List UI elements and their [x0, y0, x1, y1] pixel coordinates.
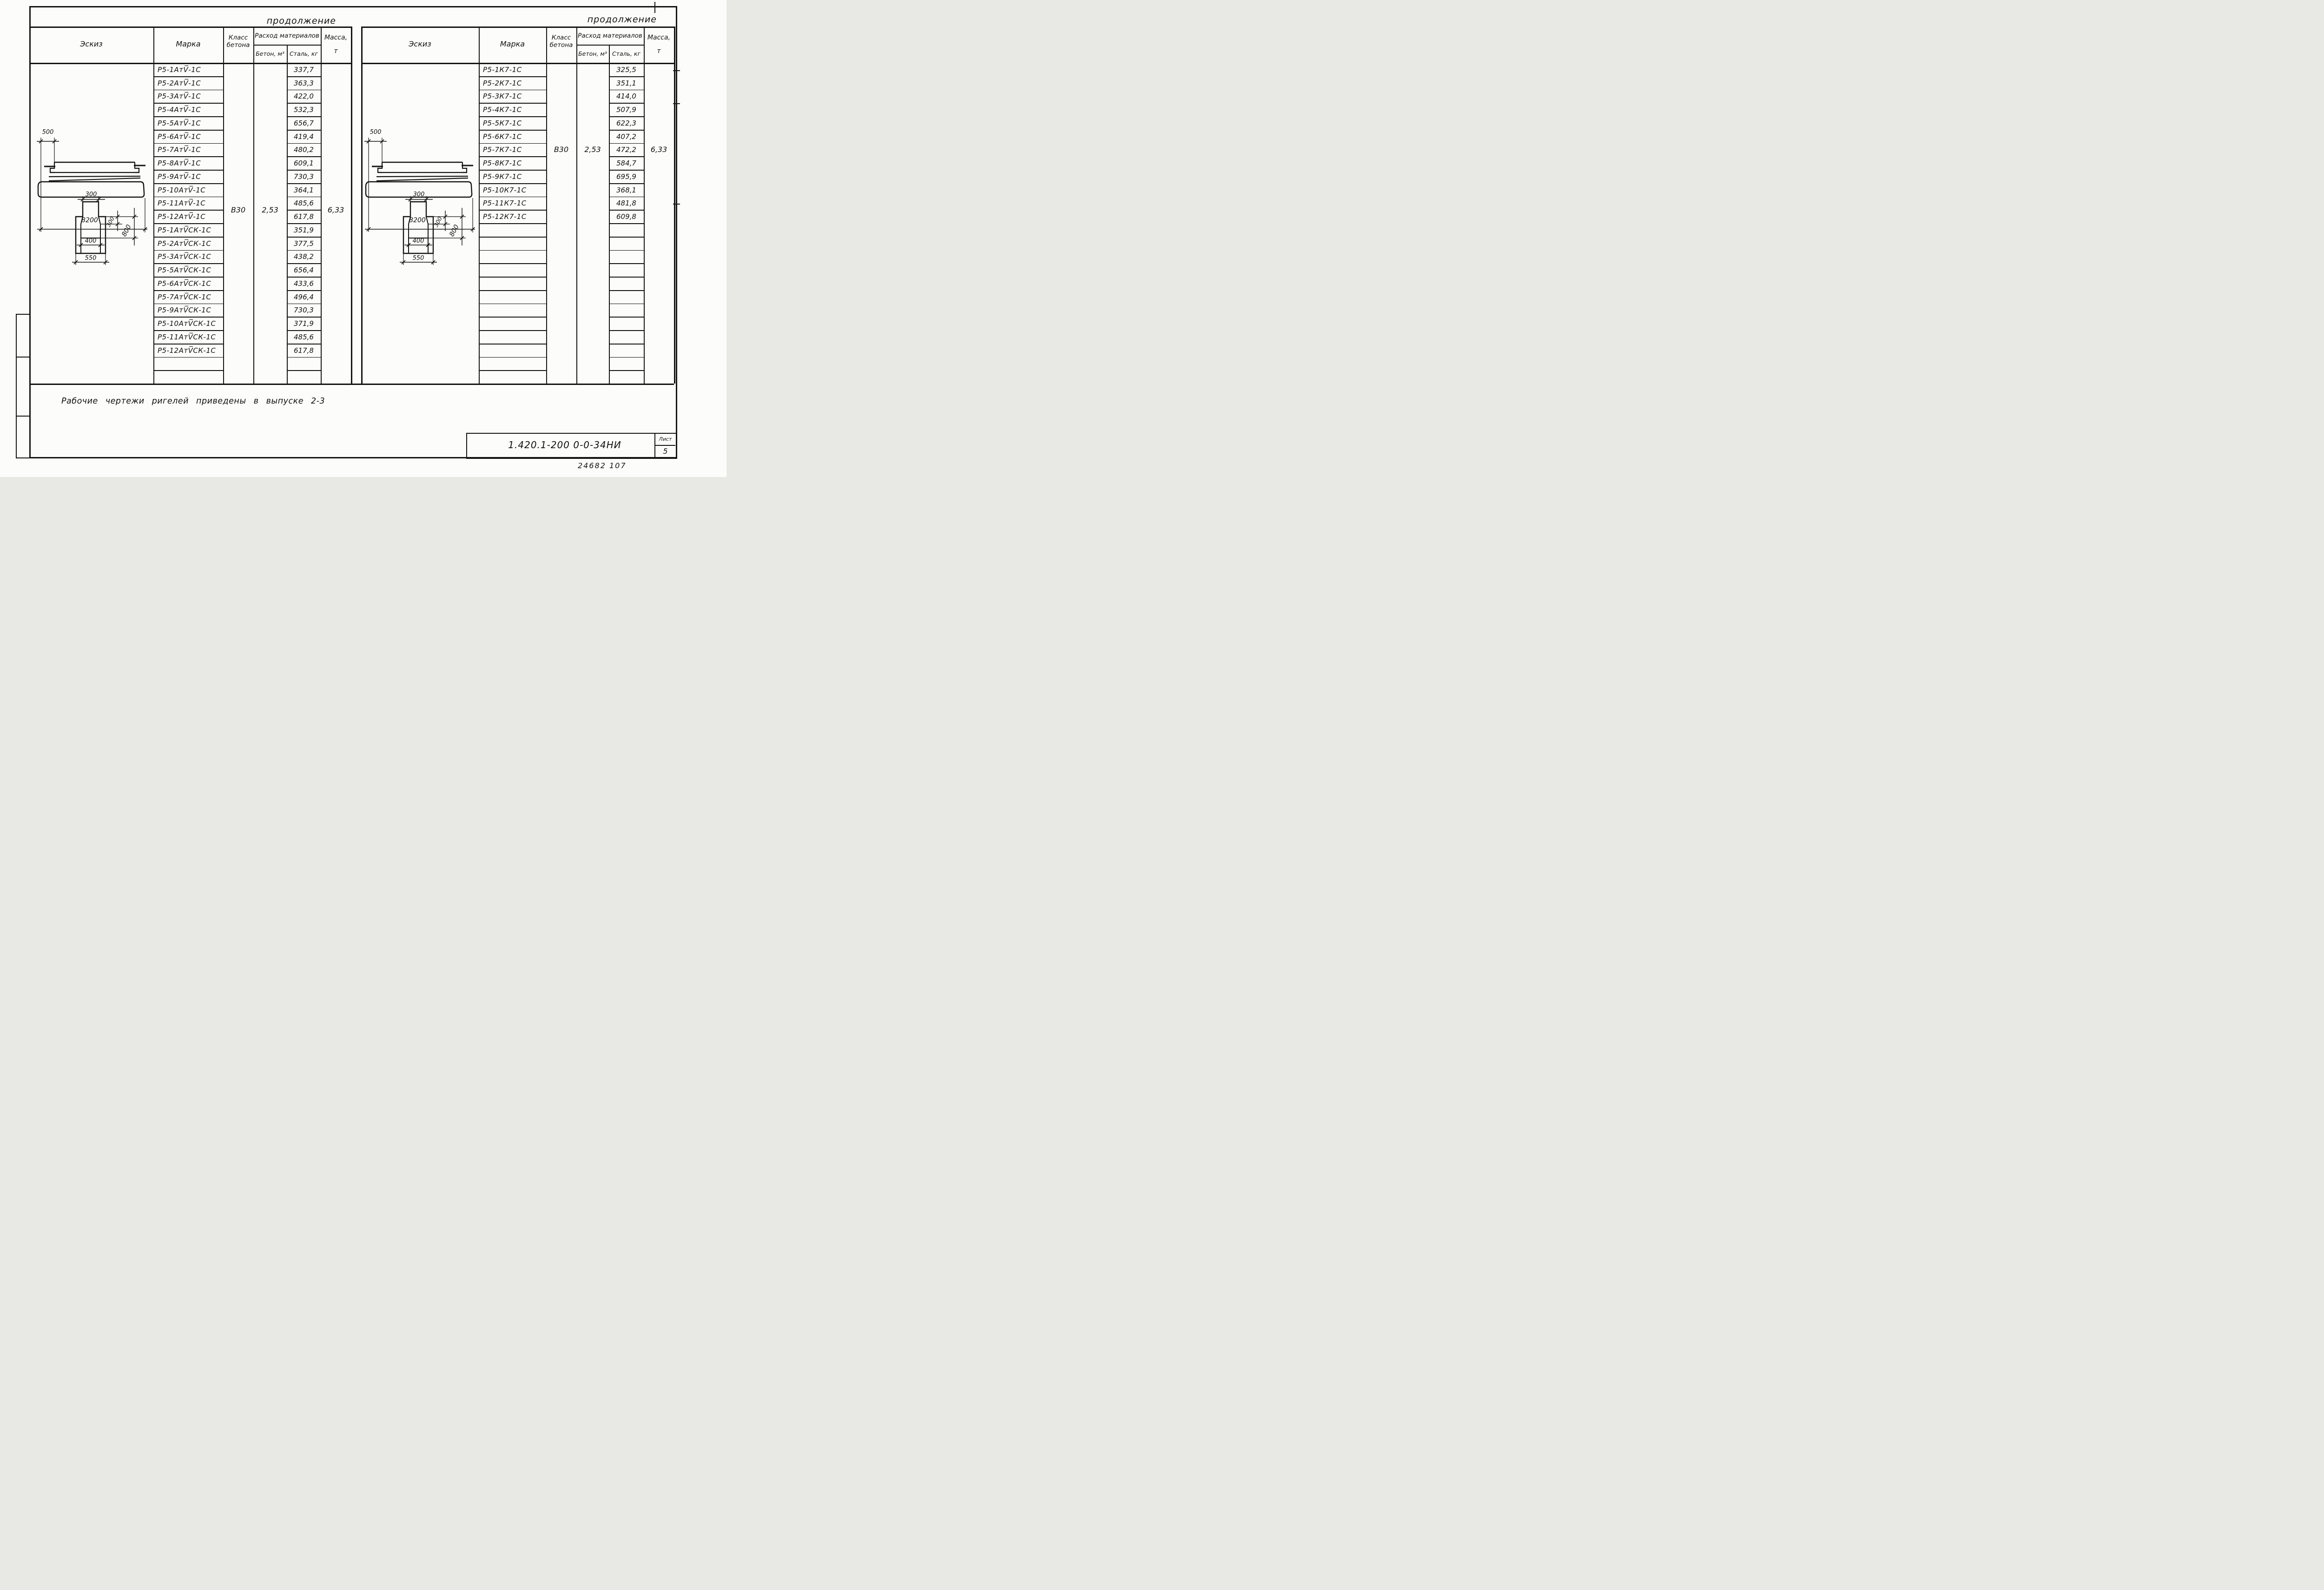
header-mark: Марка — [480, 38, 545, 50]
row-separator — [609, 170, 644, 171]
mark-cell: Р5-4К7-1С — [483, 104, 544, 115]
sheet-label: Лист — [655, 434, 675, 444]
row-separator — [609, 76, 644, 77]
steel-cell: 407,2 — [610, 131, 643, 142]
row-separator — [609, 290, 644, 291]
row-separator — [153, 76, 223, 77]
header-steel-kg: Сталь, кг — [612, 45, 641, 62]
row-separator — [153, 183, 223, 184]
steel-cell: 622,3 — [610, 118, 643, 129]
mark-cell: Р5-12АтV̅-1С — [158, 211, 221, 222]
row-separator — [479, 277, 546, 278]
column-divider — [546, 26, 547, 384]
row-separator — [153, 304, 223, 305]
mark-cell: Р5-2К7-1С — [483, 78, 544, 89]
mark-cell: Р5-11К7-1С — [483, 198, 544, 209]
row-separator — [609, 116, 644, 117]
row-separator — [287, 170, 321, 171]
steel-cell: 656,7 — [288, 118, 320, 129]
row-separator — [287, 223, 321, 224]
header-concrete-m3: Бетон, м³ — [578, 45, 607, 62]
tables-bottom-border — [29, 384, 674, 385]
mark-cell: Р5-1К7-1С — [483, 64, 544, 75]
concrete-class-value: В30 — [547, 144, 575, 155]
steel-cell: 730,3 — [288, 305, 320, 316]
margin-box-1 — [16, 314, 30, 358]
mark-cell: Р5-7АтV̅-1С — [158, 145, 221, 156]
row-separator — [287, 344, 321, 344]
steel-cell: 438,2 — [288, 252, 320, 263]
mark-cell: Р5-5К7-1С — [483, 118, 544, 129]
mark-cell: Р5-6АтV̅СК-1С — [158, 278, 221, 289]
steel-cell: 371,9 — [288, 318, 320, 329]
row-separator — [609, 277, 644, 278]
row-separator — [287, 330, 321, 331]
row-separator — [153, 330, 223, 331]
row-separator — [609, 210, 644, 211]
steel-cell: 485,6 — [288, 331, 320, 343]
continuation-label-right: продолжение — [578, 14, 657, 25]
fold-mark — [654, 2, 655, 13]
row-separator — [153, 357, 223, 358]
mark-cell: Р5-1АтV̅СК-1С — [158, 225, 221, 236]
row-separator — [479, 156, 546, 157]
row-separator — [479, 357, 546, 358]
mark-cell: Р5-5АтV̅-1С — [158, 118, 221, 129]
header-steel-kg: Сталь, кг — [290, 45, 318, 62]
row-separator — [479, 103, 546, 104]
steel-cell: 496,4 — [288, 291, 320, 303]
dim-800: 800 — [448, 223, 461, 238]
row-separator — [287, 317, 321, 318]
row-separator — [153, 170, 223, 171]
mark-cell: Р5-2АтV̅СК-1С — [158, 238, 221, 249]
concrete-volume-value: 2,53 — [254, 204, 286, 215]
row-separator — [153, 237, 223, 238]
mark-cell: Р5-12АтV̅СК-1С — [158, 345, 221, 356]
mark-cell: Р5-6АтV̅-1С — [158, 131, 221, 142]
row-separator — [609, 344, 644, 344]
row-separator — [609, 237, 644, 238]
steel-cell: 609,8 — [610, 211, 643, 222]
row-separator — [609, 304, 644, 305]
row-separator — [479, 223, 546, 224]
stamp-number: 24682 107 — [578, 461, 671, 470]
row-separator — [609, 250, 644, 251]
steel-cell: 617,8 — [288, 345, 320, 356]
row-separator — [479, 170, 546, 171]
mark-cell: Р5-8АтV̅-1С — [158, 158, 221, 169]
steel-cell: 480,2 — [288, 145, 320, 156]
table-right-border — [674, 26, 675, 384]
row-separator — [609, 183, 644, 184]
steel-cell: 414,0 — [610, 91, 643, 102]
steel-cell: 422,0 — [288, 91, 320, 102]
row-separator — [609, 357, 644, 358]
table-right-border — [351, 26, 352, 384]
steel-cell: 351,9 — [288, 225, 320, 236]
row-separator — [479, 330, 546, 331]
mark-cell: Р5-10АтV̅СК-1С — [158, 318, 221, 329]
row-separator — [287, 156, 321, 157]
dim-8200: 8200 — [409, 217, 426, 224]
dim-500: 500 — [370, 129, 382, 136]
document-number: 1.420.1-200 0-0-34НИ — [476, 434, 653, 456]
row-separator — [153, 277, 223, 278]
row-separator — [479, 76, 546, 77]
column-divider — [576, 26, 577, 384]
row-separator — [153, 156, 223, 157]
steel-cell: 433,6 — [288, 278, 320, 289]
row-separator — [609, 197, 644, 198]
steel-cell: 337,7 — [288, 64, 320, 75]
steel-cell: 507,9 — [610, 104, 643, 115]
row-separator — [479, 317, 546, 318]
margin-box-3 — [16, 416, 30, 458]
dim-550: 550 — [85, 255, 97, 262]
mark-cell: Р5-11АтV̅СК-1С — [158, 331, 221, 343]
row-separator — [287, 304, 321, 305]
mark-cell: Р5-7К7-1С — [483, 145, 544, 156]
steel-cell: 485,6 — [288, 198, 320, 209]
row-separator — [479, 183, 546, 184]
row-separator — [287, 250, 321, 251]
row-separator — [479, 344, 546, 344]
row-separator — [479, 197, 546, 198]
row-separator — [479, 237, 546, 238]
header-materials: Расход материалов — [255, 27, 320, 45]
sheet-number: 5 — [655, 446, 675, 456]
note-text: Рабочие чертежи ригелей приведены в выпу… — [61, 397, 368, 406]
row-separator — [153, 250, 223, 251]
row-separator — [479, 290, 546, 291]
row-separator — [609, 130, 644, 131]
header-mark: Марка — [156, 38, 221, 50]
mark-cell: Р5-9К7-1С — [483, 171, 544, 182]
steel-cell: 377,5 — [288, 238, 320, 249]
row-separator — [287, 290, 321, 291]
row-separator — [153, 290, 223, 291]
mark-cell: Р5-4АтV̅-1С — [158, 104, 221, 115]
mark-cell: Р5-5АтV̅СК-1С — [158, 265, 221, 276]
mark-cell: Р5-3АтV̅-1С — [158, 91, 221, 102]
steel-cell: 351,1 — [610, 78, 643, 89]
row-separator — [479, 130, 546, 131]
row-separator — [479, 304, 546, 305]
row-separator — [287, 143, 321, 144]
row-separator — [153, 130, 223, 131]
girder-sketch: 500 8200 300 300 800 400 550 — [35, 116, 149, 272]
dim-400: 400 — [85, 238, 97, 245]
row-separator — [287, 103, 321, 104]
dim-8200: 8200 — [81, 217, 98, 224]
mark-cell: Р5-7АтV̅СК-1С — [158, 291, 221, 303]
sketch-right-holder: 500 8200 300 300 800 400 550 — [363, 116, 476, 274]
header-mass-t: Масса, т — [647, 30, 671, 60]
steel-cell: 368,1 — [610, 185, 643, 196]
row-separator — [287, 277, 321, 278]
row-separator — [479, 90, 546, 91]
steel-cell: 695,9 — [610, 171, 643, 182]
mark-cell: Р5-3К7-1С — [483, 91, 544, 102]
mark-cell: Р5-12К7-1С — [483, 211, 544, 222]
mark-cell: Р5-8К7-1С — [483, 158, 544, 169]
row-separator — [287, 183, 321, 184]
dim-550: 550 — [413, 255, 424, 262]
header-concrete-class: Класс бетона — [224, 31, 253, 52]
mark-cell: Р5-10АтV̅-1С — [158, 185, 221, 196]
mark-cell: Р5-9АтV̅СК-1С — [158, 305, 221, 316]
row-separator — [609, 330, 644, 331]
dim-300-ledge: 300 — [105, 215, 116, 228]
mass-value: 6,33 — [645, 144, 673, 155]
row-separator — [479, 263, 546, 264]
mark-cell: Р5-3АтV̅СК-1С — [158, 252, 221, 263]
row-separator — [153, 116, 223, 117]
row-separator — [287, 210, 321, 211]
row-separator — [479, 116, 546, 117]
row-separator — [287, 197, 321, 198]
row-separator — [479, 210, 546, 211]
header-concrete-class: Класс бетона — [547, 31, 576, 52]
row-separator — [153, 223, 223, 224]
row-separator — [287, 116, 321, 117]
row-separator — [153, 143, 223, 144]
row-separator — [609, 370, 644, 371]
row-separator — [287, 90, 321, 91]
row-separator — [479, 143, 546, 144]
row-separator — [609, 223, 644, 224]
row-separator — [609, 103, 644, 104]
dim-400: 400 — [413, 238, 424, 245]
margin-box-2 — [16, 357, 30, 417]
mark-cell: Р5-10К7-1С — [483, 185, 544, 196]
header-sketch: Эскиз — [59, 38, 124, 50]
dim-300-top: 300 — [86, 191, 97, 198]
steel-cell: 730,3 — [288, 171, 320, 182]
steel-cell: 656,4 — [288, 265, 320, 276]
row-separator — [609, 90, 644, 91]
row-separator — [153, 263, 223, 264]
steel-cell: 609,1 — [288, 158, 320, 169]
steel-cell: 481,8 — [610, 198, 643, 209]
row-separator — [609, 156, 644, 157]
row-separator — [609, 143, 644, 144]
row-separator — [153, 344, 223, 344]
mark-cell: Р5-9АтV̅-1С — [158, 171, 221, 182]
row-separator — [287, 237, 321, 238]
steel-cell: 472,2 — [610, 145, 643, 156]
table-left-border — [361, 26, 363, 384]
mark-cell: Р5-11АтV̅-1С — [158, 198, 221, 209]
mark-cell: Р5-6К7-1С — [483, 131, 544, 142]
mark-cell: Р5-1АтV̅-1С — [158, 64, 221, 75]
row-separator — [153, 103, 223, 104]
row-separator — [479, 250, 546, 251]
sketch-left-holder: 500 8200 300 300 800 400 550 — [35, 116, 149, 274]
row-separator — [287, 130, 321, 131]
mass-value: 6,33 — [322, 204, 350, 215]
steel-cell: 532,3 — [288, 104, 320, 115]
column-divider — [644, 26, 645, 384]
row-separator — [609, 317, 644, 318]
row-separator — [153, 370, 223, 371]
row-separator — [153, 317, 223, 318]
steel-cell: 325,5 — [610, 64, 643, 75]
row-separator — [609, 263, 644, 264]
steel-cell: 584,7 — [610, 158, 643, 169]
row-separator — [287, 76, 321, 77]
dim-800: 800 — [120, 223, 133, 238]
dim-500: 500 — [42, 129, 54, 136]
row-separator — [153, 90, 223, 91]
header-sketch: Эскиз — [388, 38, 453, 50]
concrete-volume-value: 2,53 — [577, 144, 608, 155]
dim-300-ledge: 300 — [433, 215, 443, 228]
dim-300-top: 300 — [413, 191, 425, 198]
drawing-sheet: продолжение продолжение 500 8200 300 300… — [0, 0, 726, 477]
row-separator — [287, 263, 321, 264]
steel-cell: 364,1 — [288, 185, 320, 196]
header-concrete-m3: Бетон, м³ — [256, 45, 284, 62]
header-materials: Расход материалов — [578, 27, 643, 45]
steel-cell: 363,3 — [288, 78, 320, 89]
row-separator — [479, 370, 546, 371]
girder-sketch: 500 8200 300 300 800 400 550 — [363, 116, 476, 272]
header-mass-t: Масса, т — [324, 30, 348, 60]
steel-cell: 617,8 — [288, 211, 320, 222]
concrete-class-value: В30 — [224, 204, 252, 215]
row-separator — [153, 210, 223, 211]
row-separator — [153, 197, 223, 198]
continuation-label-left: продолжение — [253, 16, 336, 26]
row-separator — [287, 357, 321, 358]
steel-cell: 419,4 — [288, 131, 320, 142]
mark-cell: Р5-2АтV̅-1С — [158, 78, 221, 89]
row-separator — [287, 370, 321, 371]
